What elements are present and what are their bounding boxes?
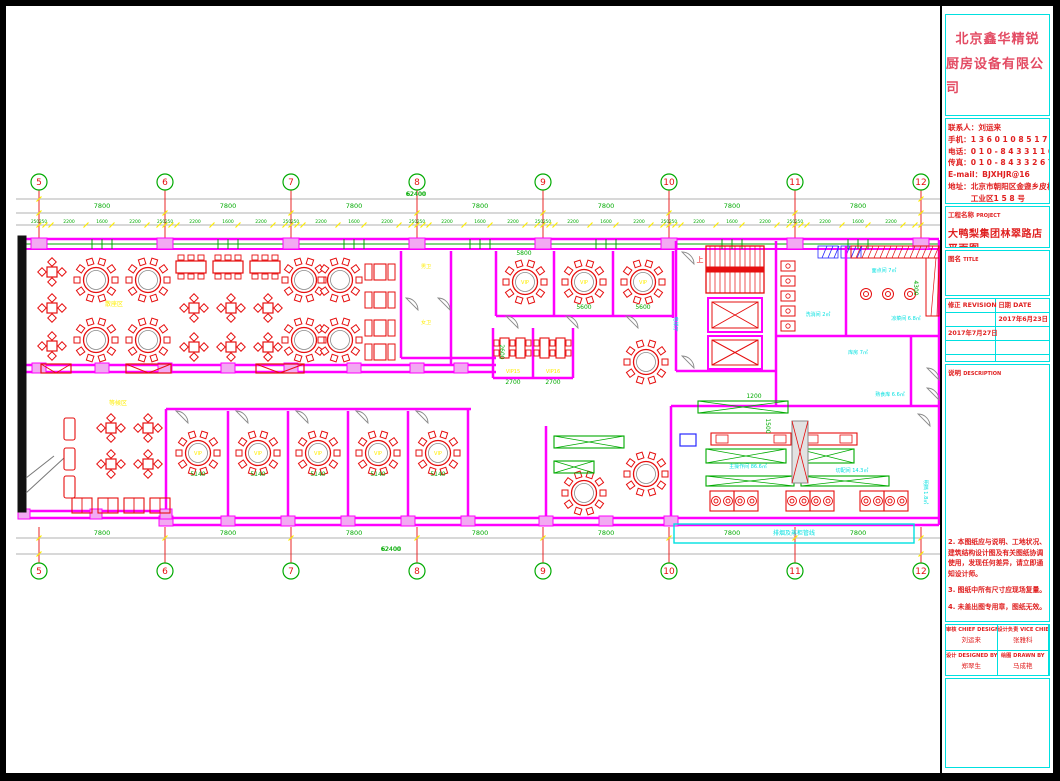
svg-text:2200: 2200 xyxy=(693,219,705,225)
svg-text:2200: 2200 xyxy=(819,219,831,225)
svg-text:2200: 2200 xyxy=(189,219,201,225)
grid-bubble: 8 xyxy=(409,563,425,579)
svg-text:7800: 7800 xyxy=(220,529,237,537)
svg-text:1600: 1600 xyxy=(600,219,612,225)
square-table xyxy=(254,294,282,322)
grid-bubble: 11 xyxy=(787,174,803,190)
svg-text:2200: 2200 xyxy=(63,219,75,225)
svg-text:VIP: VIP xyxy=(639,280,647,286)
svg-text:5600: 5600 xyxy=(576,304,591,311)
grid-bubble: 11 xyxy=(787,563,803,579)
date-label-en: DATE xyxy=(1013,302,1031,309)
svg-text:5600: 5600 xyxy=(635,304,650,311)
company-name-line2: 厨房设备有限公司 xyxy=(946,53,1049,102)
svg-text:2600: 2600 xyxy=(498,344,505,359)
revision-label: 修正 xyxy=(948,302,961,309)
svg-text:9: 9 xyxy=(540,178,546,188)
svg-text:1600: 1600 xyxy=(474,219,486,225)
contact-address-1: 地址：北京市朝阳区金盏乡皮村 xyxy=(948,181,1047,193)
svg-text:5: 5 xyxy=(36,567,42,577)
svg-text:1200: 1200 xyxy=(746,393,761,400)
svg-text:8: 8 xyxy=(414,178,420,188)
drawn-by-cell: 绘图 DRAWN BY 马成艳 xyxy=(998,651,1050,676)
grid-bubble: 12 xyxy=(913,174,929,190)
svg-text:10: 10 xyxy=(663,178,675,188)
svg-text:9: 9 xyxy=(540,567,546,577)
grid-bubble: 7 xyxy=(283,563,299,579)
svg-text:1600: 1600 xyxy=(222,219,234,225)
svg-text:250250: 250250 xyxy=(661,219,677,224)
svg-text:VIP15: VIP15 xyxy=(506,369,520,375)
company-name-line1: 北京鑫华精锐 xyxy=(955,28,1039,53)
square-table xyxy=(180,294,208,322)
revision-label-en: REVISION xyxy=(963,302,997,309)
booth-table xyxy=(365,344,395,360)
designed-by-cell: 设计 DESIGNED BY 郑翠生 xyxy=(946,651,998,676)
note-item: 3. 图纸中所有尺寸应现场复量。 xyxy=(948,585,1047,596)
grid-bubble: 5 xyxy=(31,174,47,190)
vip-rect-table xyxy=(534,338,555,358)
contact-phone: 电话：0 1 0 - 8 4 3 3 1 1 6 5 xyxy=(948,146,1047,158)
designed-by-name: 郑翠生 xyxy=(946,660,997,670)
svg-text:62400: 62400 xyxy=(406,191,425,198)
svg-text:VIP: VIP xyxy=(194,451,202,457)
svg-text:上: 上 xyxy=(697,255,704,264)
vip-rect-table xyxy=(510,338,531,358)
floor-plan-area: 5578007800250250220016002200667800780025… xyxy=(6,6,944,773)
svg-text:12: 12 xyxy=(915,567,926,577)
svg-text:2200: 2200 xyxy=(315,219,327,225)
svg-text:250250: 250250 xyxy=(31,219,47,224)
svg-text:VIP: VIP xyxy=(254,451,262,457)
round-table xyxy=(74,258,118,302)
svg-text:2200: 2200 xyxy=(255,219,267,225)
svg-text:2700: 2700 xyxy=(545,379,560,386)
round-table xyxy=(624,340,668,384)
svg-text:62400: 62400 xyxy=(381,546,400,553)
revision-row xyxy=(946,355,1049,362)
svg-text:2200: 2200 xyxy=(381,219,393,225)
svg-text:主操作间 86.6㎡: 主操作间 86.6㎡ xyxy=(729,463,767,470)
revision-row: 2017年6月23日 xyxy=(946,313,1049,327)
svg-text:1600: 1600 xyxy=(852,219,864,225)
grid-bubble: 6 xyxy=(157,563,173,579)
svg-text:250250: 250250 xyxy=(283,219,299,224)
svg-text:2200: 2200 xyxy=(441,219,453,225)
description-label-en: DESCRIPTION xyxy=(963,371,1001,377)
svg-text:熟食库 6.6㎡: 熟食库 6.6㎡ xyxy=(875,391,905,398)
svg-text:6: 6 xyxy=(162,567,168,577)
svg-text:1500: 1500 xyxy=(764,418,771,433)
floor-plan-drawing: 5578007800250250220016002200667800780025… xyxy=(6,6,944,773)
company-name-box: 北京鑫华精锐 厨房设备有限公司 xyxy=(945,14,1050,116)
square-table xyxy=(38,332,66,360)
svg-text:7800: 7800 xyxy=(850,202,867,210)
signature-table: 审核 CHIEF DESIGNER 刘运来 设计负责 VICE CHIEF DE… xyxy=(945,624,1050,676)
round-table xyxy=(562,471,606,515)
svg-text:2200: 2200 xyxy=(507,219,519,225)
svg-text:250250: 250250 xyxy=(157,219,173,224)
drawing-sheet: 5578007800250250220016002200667800780025… xyxy=(4,4,1054,775)
svg-text:4300: 4300 xyxy=(912,280,919,295)
svg-text:250250: 250250 xyxy=(787,219,803,224)
svg-text:等候区: 等候区 xyxy=(109,399,127,407)
round-table xyxy=(126,258,170,302)
svg-text:11: 11 xyxy=(789,178,800,188)
grid-bubble: 12 xyxy=(913,563,929,579)
svg-text:电梯厅: 电梯厅 xyxy=(672,316,679,331)
svg-text:散座区: 散座区 xyxy=(105,300,123,308)
rect-table xyxy=(176,255,206,279)
svg-text:7800: 7800 xyxy=(346,202,363,210)
svg-text:11: 11 xyxy=(789,567,800,577)
revision-row: 2017年7月27日 xyxy=(946,327,1049,341)
svg-text:250250: 250250 xyxy=(409,219,425,224)
svg-text:7800: 7800 xyxy=(724,202,741,210)
svg-text:凉菜间 6.8㎡: 凉菜间 6.8㎡ xyxy=(891,315,921,322)
svg-text:明档 1.8㎡: 明档 1.8㎡ xyxy=(922,480,929,505)
general-notes: 2. 本图纸应与说明、工地状况、建筑结构设计图及有关图纸协调使用，发现任何差异，… xyxy=(948,537,1047,612)
svg-text:2200: 2200 xyxy=(567,219,579,225)
svg-text:7800: 7800 xyxy=(598,529,615,537)
description-label: 说明 xyxy=(948,369,961,377)
sofa-seat xyxy=(64,448,75,470)
svg-text:排烟及蒸柜管线: 排烟及蒸柜管线 xyxy=(773,529,815,537)
svg-text:VIP: VIP xyxy=(521,280,529,286)
round-table xyxy=(74,318,118,362)
drawing-title-box: 图名 TITLE xyxy=(945,250,1050,296)
square-table xyxy=(38,258,66,286)
svg-text:10: 10 xyxy=(663,567,675,577)
project-label: 工程名称 xyxy=(948,211,974,219)
svg-text:12: 12 xyxy=(915,178,926,188)
svg-text:1600: 1600 xyxy=(96,219,108,225)
svg-text:VIP: VIP xyxy=(314,451,322,457)
svg-text:7800: 7800 xyxy=(220,202,237,210)
contact-fax: 传真：0 1 0 - 8 4 3 3 2 6 7 9 xyxy=(948,157,1047,169)
svg-text:6: 6 xyxy=(162,178,168,188)
grid-bubble: 9 xyxy=(535,174,551,190)
project-name: 大鸭梨集团林翠路店平面图 xyxy=(948,225,1047,248)
svg-text:7800: 7800 xyxy=(724,529,741,537)
grid-bubble: 8 xyxy=(409,174,425,190)
contact-address-2: 工业区1 5 8 号 xyxy=(948,193,1047,204)
empty-title-cell xyxy=(945,678,1050,768)
svg-text:7800: 7800 xyxy=(472,529,489,537)
contact-email: E-mail：BJXHJR@16 xyxy=(948,169,1047,181)
svg-text:2200: 2200 xyxy=(885,219,897,225)
svg-text:VIP16: VIP16 xyxy=(546,369,560,375)
round-table xyxy=(126,318,170,362)
contact-person: 联系人：刘运来 xyxy=(948,122,1047,134)
svg-text:面点间 7㎡: 面点间 7㎡ xyxy=(872,267,897,274)
svg-text:250250: 250250 xyxy=(535,219,551,224)
description-box: 说明 DESCRIPTION 2. 本图纸应与说明、工地状况、建筑结构设计图及有… xyxy=(945,364,1050,622)
sofa-seat xyxy=(64,476,75,498)
vice-chief-designer-cell: 设计负责 VICE CHIEF DESIGNER 张雅科 xyxy=(998,625,1050,650)
svg-text:5140: 5140 xyxy=(370,471,385,478)
rect-table xyxy=(250,255,280,279)
rect-table xyxy=(213,255,243,279)
svg-text:女卫: 女卫 xyxy=(421,319,431,326)
svg-text:7: 7 xyxy=(288,178,294,188)
contact-mobile: 手机：1 3 6 0 1 0 8 5 1 7 1 xyxy=(948,134,1047,146)
square-table xyxy=(134,450,162,478)
square-table xyxy=(134,414,162,442)
grid-bubble: 9 xyxy=(535,563,551,579)
svg-text:5800: 5800 xyxy=(516,250,531,257)
svg-text:8: 8 xyxy=(414,567,420,577)
dining-tables xyxy=(38,255,668,515)
svg-text:VIP: VIP xyxy=(580,280,588,286)
chief-designer-cell: 审核 CHIEF DESIGNER 刘运来 xyxy=(946,625,998,650)
svg-text:7800: 7800 xyxy=(598,202,615,210)
svg-text:7800: 7800 xyxy=(94,529,111,537)
svg-text:1600: 1600 xyxy=(348,219,360,225)
svg-text:5: 5 xyxy=(36,178,42,188)
svg-text:VIP: VIP xyxy=(434,451,442,457)
svg-text:5140: 5140 xyxy=(430,471,445,478)
svg-text:2200: 2200 xyxy=(129,219,141,225)
svg-text:7: 7 xyxy=(288,567,294,577)
square-table xyxy=(180,333,208,361)
svg-text:7800: 7800 xyxy=(94,202,111,210)
svg-text:2700: 2700 xyxy=(505,379,520,386)
svg-text:5140: 5140 xyxy=(310,471,325,478)
grid-bubble: 5 xyxy=(31,563,47,579)
svg-text:切配间 14.3㎡: 切配间 14.3㎡ xyxy=(836,467,869,474)
svg-text:2200: 2200 xyxy=(633,219,645,225)
svg-text:5140: 5140 xyxy=(250,471,265,478)
round-table xyxy=(624,452,668,496)
square-table xyxy=(217,294,245,322)
grid-bubble: 6 xyxy=(157,174,173,190)
revision-table: 修正 REVISION 日期 DATE 2017年6月23日 2017年7月27… xyxy=(945,298,1050,362)
svg-text:2200: 2200 xyxy=(759,219,771,225)
vice-chief-designer-name: 张雅科 xyxy=(998,634,1049,644)
booth-table xyxy=(365,292,395,308)
square-table xyxy=(217,333,245,361)
grid-bubble: 10 xyxy=(661,174,677,190)
project-label-en: PROJECT xyxy=(976,213,1000,219)
grid-bubble: 10 xyxy=(661,563,677,579)
square-table xyxy=(38,294,66,322)
square-table xyxy=(97,450,125,478)
drawn-by-name: 马成艳 xyxy=(998,660,1049,670)
project-box: 工程名称 PROJECT 大鸭梨集团林翠路店平面图 xyxy=(945,206,1050,248)
sofa-seat xyxy=(64,418,75,440)
svg-text:1600: 1600 xyxy=(726,219,738,225)
title-block: 北京鑫华精锐 厨房设备有限公司 联系人：刘运来 手机：1 3 6 0 1 0 8… xyxy=(940,6,1053,773)
revision-row xyxy=(946,341,1049,355)
chief-designer-name: 刘运来 xyxy=(946,634,997,644)
square-table xyxy=(254,333,282,361)
note-item: 4. 未盖出图专用章，图纸无效。 xyxy=(948,602,1047,613)
vip-rect-table xyxy=(550,338,571,358)
title-label: 图名 xyxy=(948,255,961,263)
svg-text:VIP: VIP xyxy=(374,451,382,457)
square-table xyxy=(97,414,125,442)
date-label: 日期 xyxy=(998,302,1011,309)
svg-text:7800: 7800 xyxy=(346,529,363,537)
svg-text:7800: 7800 xyxy=(472,202,489,210)
svg-text:7800: 7800 xyxy=(850,529,867,537)
contact-info-box: 联系人：刘运来 手机：1 3 6 0 1 0 8 5 1 7 1 电话：0 1 … xyxy=(945,118,1050,204)
svg-text:男卫: 男卫 xyxy=(421,264,431,270)
note-item: 2. 本图纸应与说明、工地状况、建筑结构设计图及有关图纸协调使用，发现任何差异，… xyxy=(948,537,1047,579)
svg-text:库房 7㎡: 库房 7㎡ xyxy=(848,349,868,356)
svg-text:5140: 5140 xyxy=(190,471,205,478)
booth-table xyxy=(365,320,395,336)
grid-bubble: 7 xyxy=(283,174,299,190)
title-label-en: TITLE xyxy=(963,257,978,263)
svg-text:洗消间 2㎡: 洗消间 2㎡ xyxy=(806,311,831,318)
booth-table xyxy=(365,264,395,280)
